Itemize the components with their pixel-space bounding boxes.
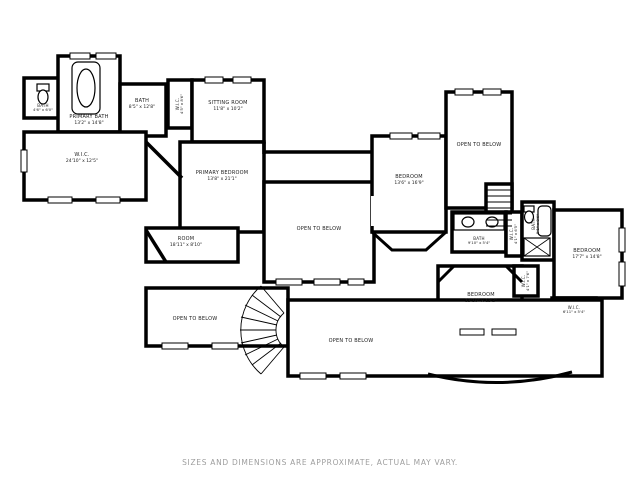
diagonal-hall-wall [146,142,182,178]
bathtub-fixture [72,62,100,114]
room-label-sitting-room: SITTING ROOM 11'8" x 10'2" [208,100,247,112]
room-label-open-left: OPEN TO BELOW [173,316,218,323]
room-label-closet-bottom: W.I.C. 4'1" x 7'6" [521,271,531,291]
room-label-bath-upper: BATH 8'5" x 12'8" [129,98,155,110]
room-label-wic-hall: W.I.C. 4'5" x 8'6" [175,94,185,114]
room-label-bath-right: BATH 5'1" x 8'6" [531,214,541,234]
room-label-bath-hall: BATH 9'10" x 5'4" [468,236,490,246]
room-label-primary-bedroom: PRIMARY BEDROOM 13'8" x 21'1" [196,170,249,182]
room-label-bath-small: BATH 4'6" x 6'0" [33,103,53,113]
room-label-open-bottom: OPEN TO BELOW [329,338,374,345]
shower-fixture [524,238,550,256]
room-label-primary-bath: PRIMARY BATH 13'2" x 14'8" [69,114,108,126]
floor-plan-page: BATH 4'6" x 6'0" PRIMARY BATH 13'2" x 14… [0,0,640,480]
room-label-bedroom-right: BEDROOM 17'7" x 14'8" [572,248,601,260]
room-label-wic-right: W.I.C. 6'11" x 5'4" [563,305,585,315]
door-opening [371,196,378,226]
room-label-open-center: OPEN TO BELOW [297,226,342,233]
room-label-wic-primary: W.I.C. 24'10" x 12'5" [66,152,98,164]
room-label-bedroom-top: BEDROOM 13'6" x 16'9" [394,174,423,186]
room-label-open-top-right: OPEN TO BELOW [457,142,502,149]
room-label-wic-small: W.I.C. 4'1" x 6'5" [509,224,519,244]
room-label-room: ROOM 18'11" x 8'10" [170,236,202,248]
floor-plan-drawing [0,0,640,480]
toilet-fixture [37,84,49,104]
disclaimer-text: SIZES AND DIMENSIONS ARE APPROXIMATE, AC… [0,458,640,467]
room-label-bedroom-bottom: BEDROOM 13'10" x 13'2" [465,292,497,304]
bay-window-bedroom-top [372,232,446,250]
double-sink-vanity [454,214,504,230]
